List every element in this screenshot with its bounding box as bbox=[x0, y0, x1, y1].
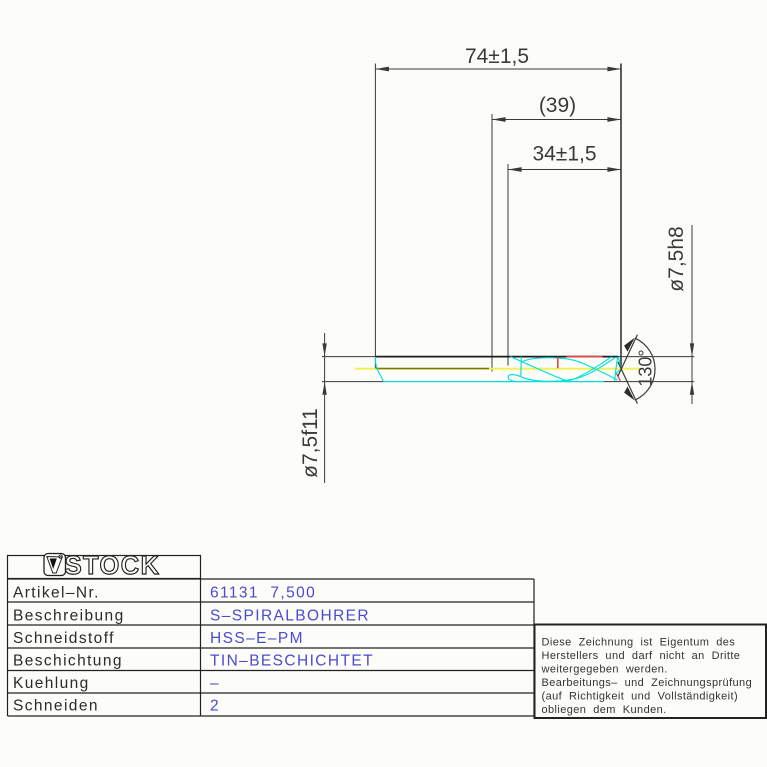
svg-text:Schneiden: Schneiden bbox=[13, 698, 99, 715]
svg-text:ø7,5f11: ø7,5f11 bbox=[299, 408, 322, 478]
svg-text:34±1,5: 34±1,5 bbox=[532, 143, 596, 166]
svg-text:Schneidstoff: Schneidstoff bbox=[13, 630, 115, 647]
svg-text:Artikel–Nr.: Artikel–Nr. bbox=[13, 585, 100, 602]
svg-text:74±1,5: 74±1,5 bbox=[465, 45, 529, 68]
svg-text:Beschreibung: Beschreibung bbox=[13, 608, 125, 625]
svg-text:TIN–BESCHICHTET: TIN–BESCHICHTET bbox=[210, 653, 374, 670]
svg-text:61131 7,500: 61131 7,500 bbox=[210, 585, 316, 602]
svg-text:ø7,5h8: ø7,5h8 bbox=[665, 226, 688, 291]
svg-text:Kuehlung: Kuehlung bbox=[13, 675, 90, 692]
svg-text:HSS–E–PM: HSS–E–PM bbox=[210, 630, 304, 647]
svg-text:weitergegeben werden.: weitergegeben werden. bbox=[541, 664, 668, 676]
svg-text:obliegen dem Kunden.: obliegen dem Kunden. bbox=[542, 704, 667, 716]
svg-text:S–SPIRALBOHRER: S–SPIRALBOHRER bbox=[210, 608, 370, 625]
svg-text:STOCK: STOCK bbox=[65, 552, 161, 580]
svg-text:Bearbeitungs– und Zeichnungspr: Bearbeitungs– und Zeichnungsprüfung bbox=[542, 677, 753, 689]
svg-text:Herstellers und darf nicht an: Herstellers und darf nicht an Dritte bbox=[542, 650, 741, 662]
svg-text:Beschichtung: Beschichtung bbox=[13, 653, 123, 670]
svg-text:–: – bbox=[210, 675, 220, 692]
svg-text:Diese Zeichnung ist Eigentum d: Diese Zeichnung ist Eigentum des bbox=[542, 637, 736, 649]
svg-text:(auf Richtigkeit und Vollständ: (auf Richtigkeit und Vollständigkeit) bbox=[542, 691, 739, 703]
svg-text:(39): (39) bbox=[539, 94, 576, 117]
svg-text:130°: 130° bbox=[636, 349, 656, 386]
svg-text:2: 2 bbox=[210, 698, 220, 715]
